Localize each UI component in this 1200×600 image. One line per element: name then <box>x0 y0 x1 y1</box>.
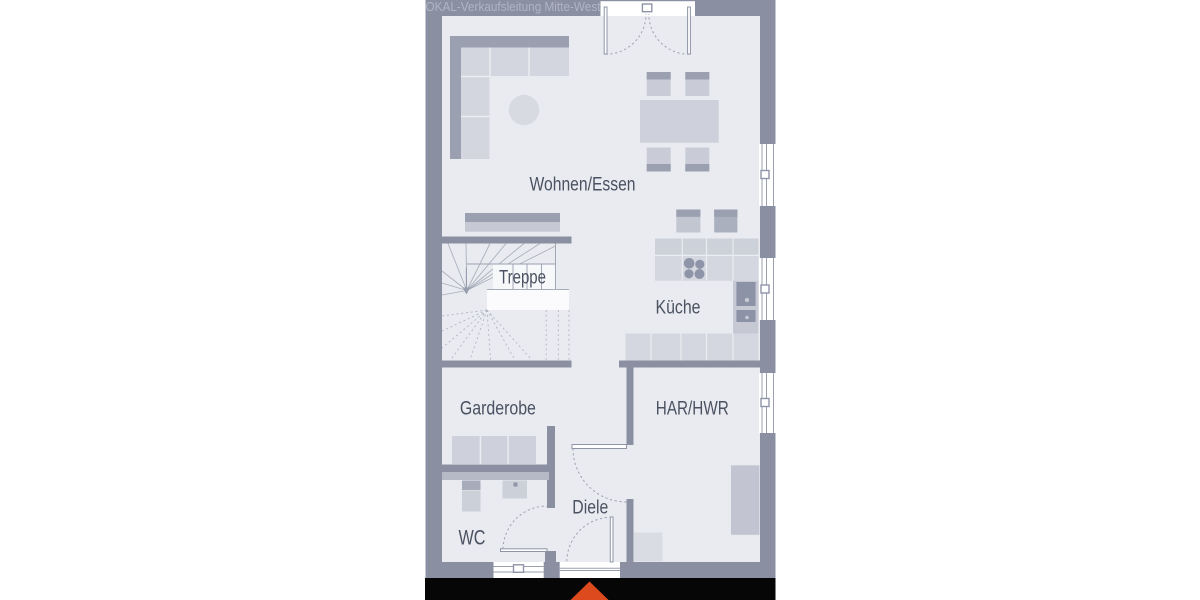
svg-text:Treppe: Treppe <box>499 268 546 289</box>
svg-text:Garderobe: Garderobe <box>460 398 536 419</box>
svg-text:Diele: Diele <box>572 497 608 518</box>
svg-text:OKAL-Verkaufsleitung Mitte-Wes: OKAL-Verkaufsleitung Mitte-West <box>426 0 601 14</box>
svg-text:Wohnen/Essen: Wohnen/Essen <box>530 175 636 196</box>
svg-text:Küche: Küche <box>656 297 701 318</box>
svg-text:WC: WC <box>459 525 486 549</box>
svg-text:HAR/HWR: HAR/HWR <box>656 399 729 420</box>
